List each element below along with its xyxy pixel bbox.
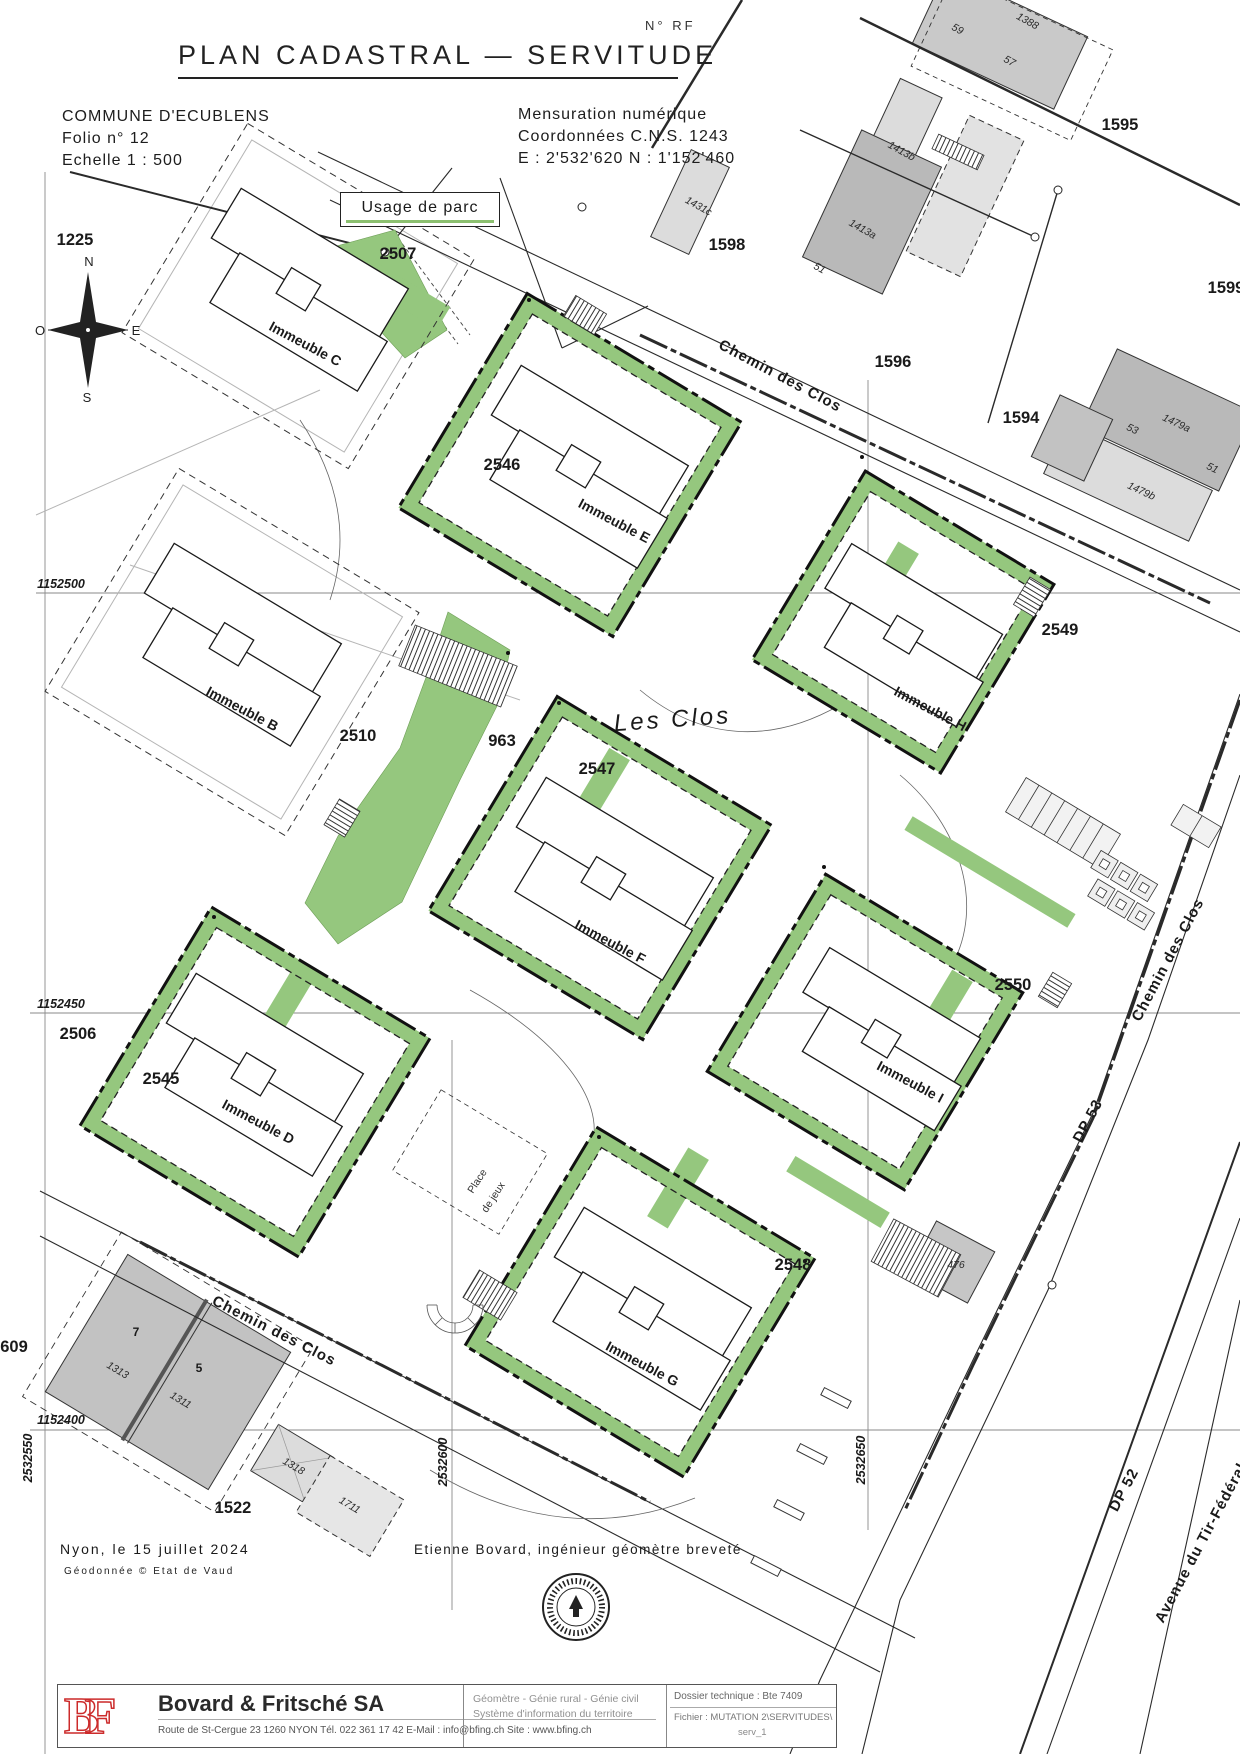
commune-block: COMMUNE D'ECUBLENS Folio n° 12 Echelle 1…	[62, 106, 270, 172]
divider	[670, 1707, 836, 1708]
map-label: 2547	[579, 760, 616, 778]
map-label: Place	[465, 1167, 489, 1196]
map-label: 1595	[1102, 116, 1139, 134]
map-label: 2532550	[21, 1434, 35, 1484]
map-label: 2532650	[854, 1436, 868, 1486]
legend-green-swatch	[346, 220, 494, 223]
map-label: 7	[133, 1325, 140, 1339]
map-label: 1152400	[37, 1413, 85, 1427]
map-label: 1522	[215, 1499, 252, 1517]
plan-date: Nyon, le 15 juillet 2024	[60, 1541, 250, 1557]
cadastral-plan-page: N O E S 12252507159815961595159415992546…	[0, 0, 1240, 1754]
map-label: 2507	[380, 245, 417, 263]
cns-coordinates: Coordonnées C.N.S. 1243	[518, 126, 735, 148]
map-label: 2545	[143, 1070, 180, 1088]
official-seal	[543, 1574, 609, 1640]
en-coordinates: E : 2'532'620 N : 1'152'460	[518, 148, 735, 170]
building-immeuble-b	[116, 543, 350, 746]
map-label: Chemin des Clos	[716, 336, 845, 415]
fichier-path: Fichier : MUTATION 2\SERVITUDES\	[674, 1712, 832, 1723]
divider	[666, 1685, 667, 1747]
fichier-path-2: serv_1	[738, 1727, 767, 1738]
map-label: de jeux	[479, 1179, 508, 1215]
company-services-1: Géomètre - Génie rural - Génie civil	[473, 1693, 639, 1705]
mensuration-block: Mensuration numérique Coordonnées C.N.S.…	[518, 104, 735, 170]
map-label: 2506	[60, 1025, 97, 1043]
scale-label: Echelle 1 : 500	[62, 150, 270, 172]
company-address: Route de St-Cergue 23 1260 NYON Tél. 022…	[158, 1725, 592, 1736]
mensuration-type: Mensuration numérique	[518, 104, 735, 126]
map-label: 2550	[995, 976, 1032, 994]
map-label: 1599	[1208, 279, 1240, 297]
divider	[463, 1685, 464, 1747]
map-label: 2532600	[436, 1438, 450, 1488]
map-label: 1596	[875, 353, 912, 371]
map-label: 1225	[57, 231, 94, 249]
cadastral-map: N O E S 12252507159815961595159415992546…	[0, 0, 1240, 1754]
map-label: Les Clos	[613, 702, 732, 737]
company-name: Bovard & Fritsché SA	[158, 1691, 384, 1717]
map-label: 2549	[1042, 621, 1079, 639]
folio-number: Folio n° 12	[62, 128, 270, 150]
dossier-technique: Dossier technique : Bte 7409	[674, 1691, 802, 1702]
map-label: 476	[947, 1259, 965, 1271]
map-label: 963	[488, 732, 516, 750]
company-services-2: Système d'information du territoire	[473, 1708, 633, 1720]
compass-rose: N O E S	[35, 254, 141, 405]
map-label: DP 53	[1070, 1096, 1107, 1145]
geodata-credit: Géodonnée © Etat de Vaud	[64, 1566, 234, 1577]
map-label: 2510	[340, 727, 377, 745]
map-label: DP 52	[1106, 1465, 1143, 1514]
map-label: 2546	[484, 456, 521, 474]
map-label: 2548	[775, 1256, 812, 1274]
map-label: 1152450	[37, 997, 85, 1011]
engineer-name: Etienne Bovard, ingénieur géomètre breve…	[414, 1542, 742, 1557]
compass-e: E	[132, 323, 141, 338]
company-logo-bf: BF	[64, 1687, 102, 1746]
compass-s: S	[83, 390, 92, 405]
legend-usage-de-parc: Usage de parc	[340, 192, 500, 227]
page-title: PLAN CADASTRAL — SERVITUDE	[178, 40, 678, 79]
company-footer-bar: BF Bovard & Fritsché SA Route de St-Cerg…	[57, 1684, 837, 1748]
map-label: 5	[196, 1361, 203, 1375]
map-label: Avenue du Tir-Fédéral	[1152, 1460, 1240, 1626]
compass-n: N	[84, 254, 93, 269]
legend-label: Usage de parc	[361, 199, 478, 216]
map-label: 1598	[709, 236, 746, 254]
map-label: 1594	[1003, 409, 1041, 427]
commune-name: COMMUNE D'ECUBLENS	[62, 106, 270, 128]
map-label: 1152500	[37, 577, 85, 591]
compass-o: O	[35, 323, 45, 338]
map-label: 609	[0, 1338, 28, 1356]
rf-number-label: N° RF	[645, 18, 696, 33]
